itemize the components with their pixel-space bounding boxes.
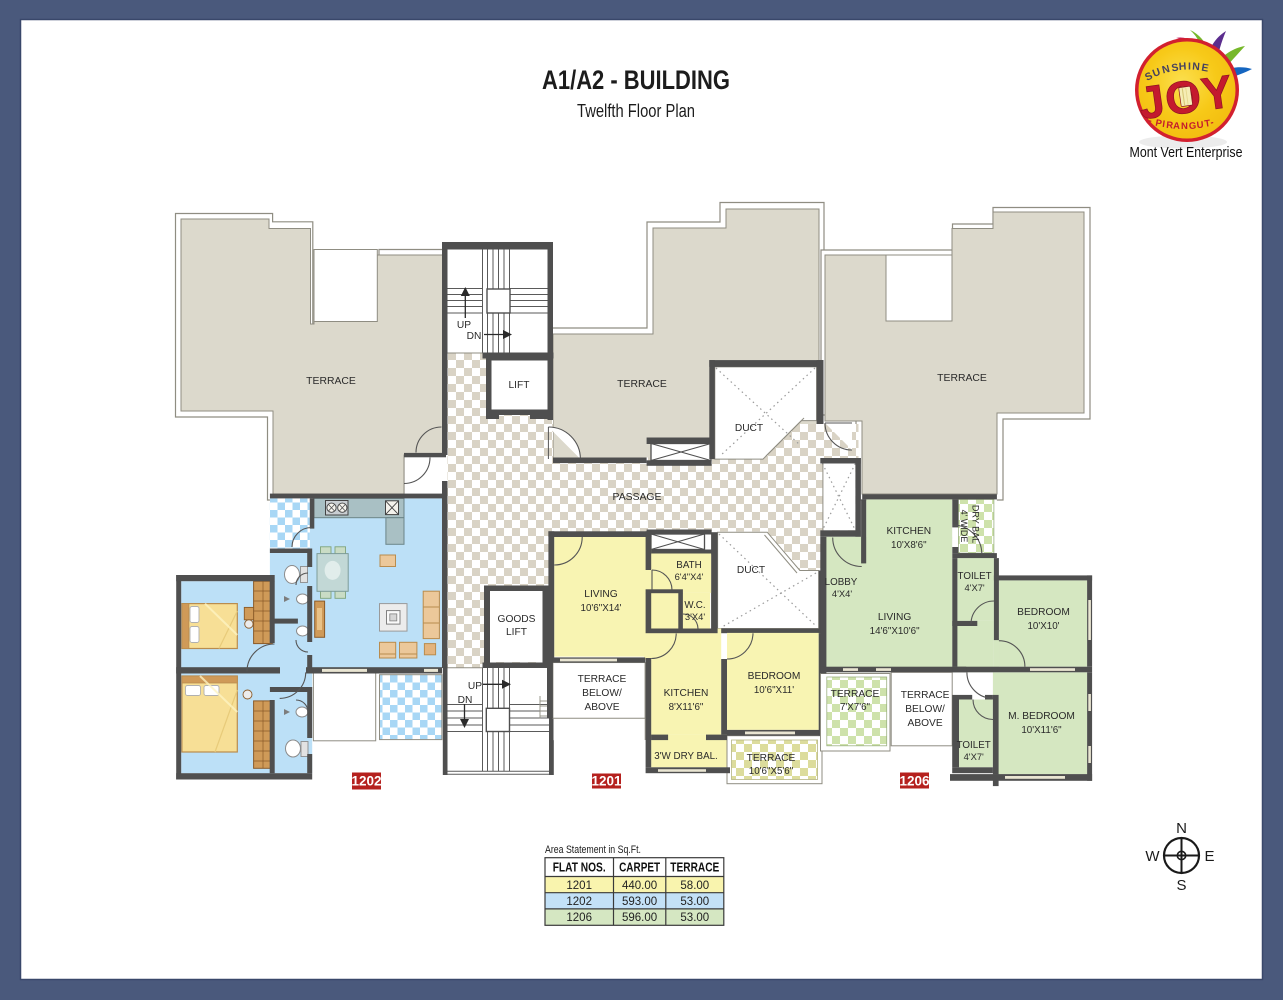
- svg-text:ABOVE: ABOVE: [584, 702, 619, 713]
- svg-text:U: U: [1196, 120, 1204, 132]
- svg-text:1206: 1206: [566, 912, 592, 924]
- svg-text:UP: UP: [468, 681, 482, 692]
- svg-text:TERRACE: TERRACE: [831, 689, 880, 700]
- svg-text:TERRACE: TERRACE: [670, 861, 719, 875]
- svg-text:6'4"X4': 6'4"X4': [675, 571, 704, 582]
- svg-text:Area Statement in Sq.Ft.: Area Statement in Sq.Ft.: [545, 844, 641, 856]
- svg-text:4'X7': 4'X7': [964, 751, 984, 762]
- svg-text:10'X11'6": 10'X11'6": [1021, 725, 1062, 736]
- svg-text:10'6"X11': 10'6"X11': [754, 685, 794, 696]
- svg-text:UP: UP: [457, 320, 471, 331]
- svg-text:A1/A2 - BUILDING: A1/A2 - BUILDING: [542, 65, 730, 95]
- svg-text:W: W: [1145, 848, 1160, 865]
- svg-text:N: N: [1181, 121, 1188, 132]
- svg-text:7'X7'6": 7'X7'6": [840, 702, 871, 713]
- svg-text:440.00: 440.00: [622, 880, 657, 892]
- svg-text:BEDROOM: BEDROOM: [748, 671, 801, 682]
- svg-text:G: G: [1189, 121, 1197, 132]
- svg-text:4'X4': 4'X4': [832, 588, 852, 599]
- svg-text:10'6"X5'6": 10'6"X5'6": [749, 766, 794, 777]
- svg-text:8'X11'6": 8'X11'6": [669, 702, 704, 713]
- svg-text:596.00: 596.00: [622, 912, 657, 924]
- svg-text:3'X4': 3'X4': [685, 611, 705, 622]
- svg-text:58.00: 58.00: [680, 880, 709, 892]
- svg-text:1202: 1202: [351, 774, 381, 789]
- svg-text:3'W DRY BAL.: 3'W DRY BAL.: [654, 751, 718, 762]
- svg-text:S: S: [1176, 877, 1186, 894]
- svg-text:Twelfth Floor Plan: Twelfth Floor Plan: [577, 101, 695, 121]
- svg-text:ABOVE: ABOVE: [908, 718, 943, 729]
- svg-text:KITCHEN: KITCHEN: [886, 526, 931, 537]
- svg-text:TERRACE: TERRACE: [937, 373, 987, 384]
- svg-text:1202: 1202: [566, 896, 592, 908]
- svg-text:1201: 1201: [566, 880, 592, 892]
- svg-text:DN: DN: [458, 695, 473, 706]
- svg-text:N: N: [1176, 820, 1187, 837]
- svg-text:TERRACE: TERRACE: [306, 376, 356, 387]
- svg-text:A: A: [1173, 121, 1181, 132]
- svg-text:53.00: 53.00: [680, 896, 709, 908]
- svg-text:LOBBY: LOBBY: [825, 577, 858, 588]
- svg-text:BATH: BATH: [676, 560, 701, 571]
- svg-text:LIFT: LIFT: [509, 380, 530, 391]
- svg-text:10'X8'6": 10'X8'6": [891, 540, 927, 551]
- svg-text:Mont Vert Enterprise: Mont Vert Enterprise: [1130, 145, 1243, 161]
- svg-text:53.00: 53.00: [680, 912, 709, 924]
- svg-text:TERRACE: TERRACE: [901, 690, 950, 701]
- svg-text:GOODS: GOODS: [498, 614, 536, 625]
- svg-text:M. BEDROOM: M. BEDROOM: [1008, 711, 1075, 722]
- svg-text:LIFT: LIFT: [506, 627, 527, 638]
- svg-text:DN: DN: [467, 331, 482, 342]
- svg-text:TERRACE: TERRACE: [578, 674, 627, 685]
- svg-text:DUCT: DUCT: [737, 565, 765, 576]
- svg-text:E: E: [1204, 848, 1214, 865]
- svg-text:LIVING: LIVING: [878, 612, 911, 623]
- svg-text:4' WIDE: 4' WIDE: [959, 510, 969, 543]
- svg-text:TOILET: TOILET: [958, 571, 992, 582]
- svg-text:TOILET: TOILET: [957, 740, 991, 751]
- svg-text:1201: 1201: [591, 774, 622, 789]
- svg-text:FLAT NOS.: FLAT NOS.: [553, 861, 606, 875]
- svg-text:4'X7': 4'X7': [964, 582, 984, 593]
- svg-text:TERRACE: TERRACE: [617, 379, 667, 390]
- svg-text:BELOW/: BELOW/: [582, 688, 622, 699]
- svg-text:10'6"X14': 10'6"X14': [581, 603, 622, 614]
- svg-text:1206: 1206: [899, 774, 930, 789]
- svg-text:593.00: 593.00: [622, 896, 657, 908]
- svg-text:TERRACE: TERRACE: [747, 753, 796, 764]
- svg-text:BEDROOM: BEDROOM: [1017, 607, 1070, 618]
- svg-text:KITCHEN: KITCHEN: [664, 688, 709, 699]
- svg-text:DRY BAL: DRY BAL: [971, 505, 981, 543]
- svg-text:DUCT: DUCT: [735, 423, 763, 434]
- svg-text:PASSAGE: PASSAGE: [613, 492, 662, 503]
- svg-text:CARPET: CARPET: [619, 861, 660, 875]
- svg-text:LIVING: LIVING: [584, 589, 617, 600]
- svg-text:W.C.: W.C.: [684, 600, 705, 611]
- svg-text:14'6"X10'6": 14'6"X10'6": [870, 626, 920, 637]
- svg-text:BELOW/: BELOW/: [905, 704, 945, 715]
- svg-text:10'X10': 10'X10': [1027, 621, 1059, 632]
